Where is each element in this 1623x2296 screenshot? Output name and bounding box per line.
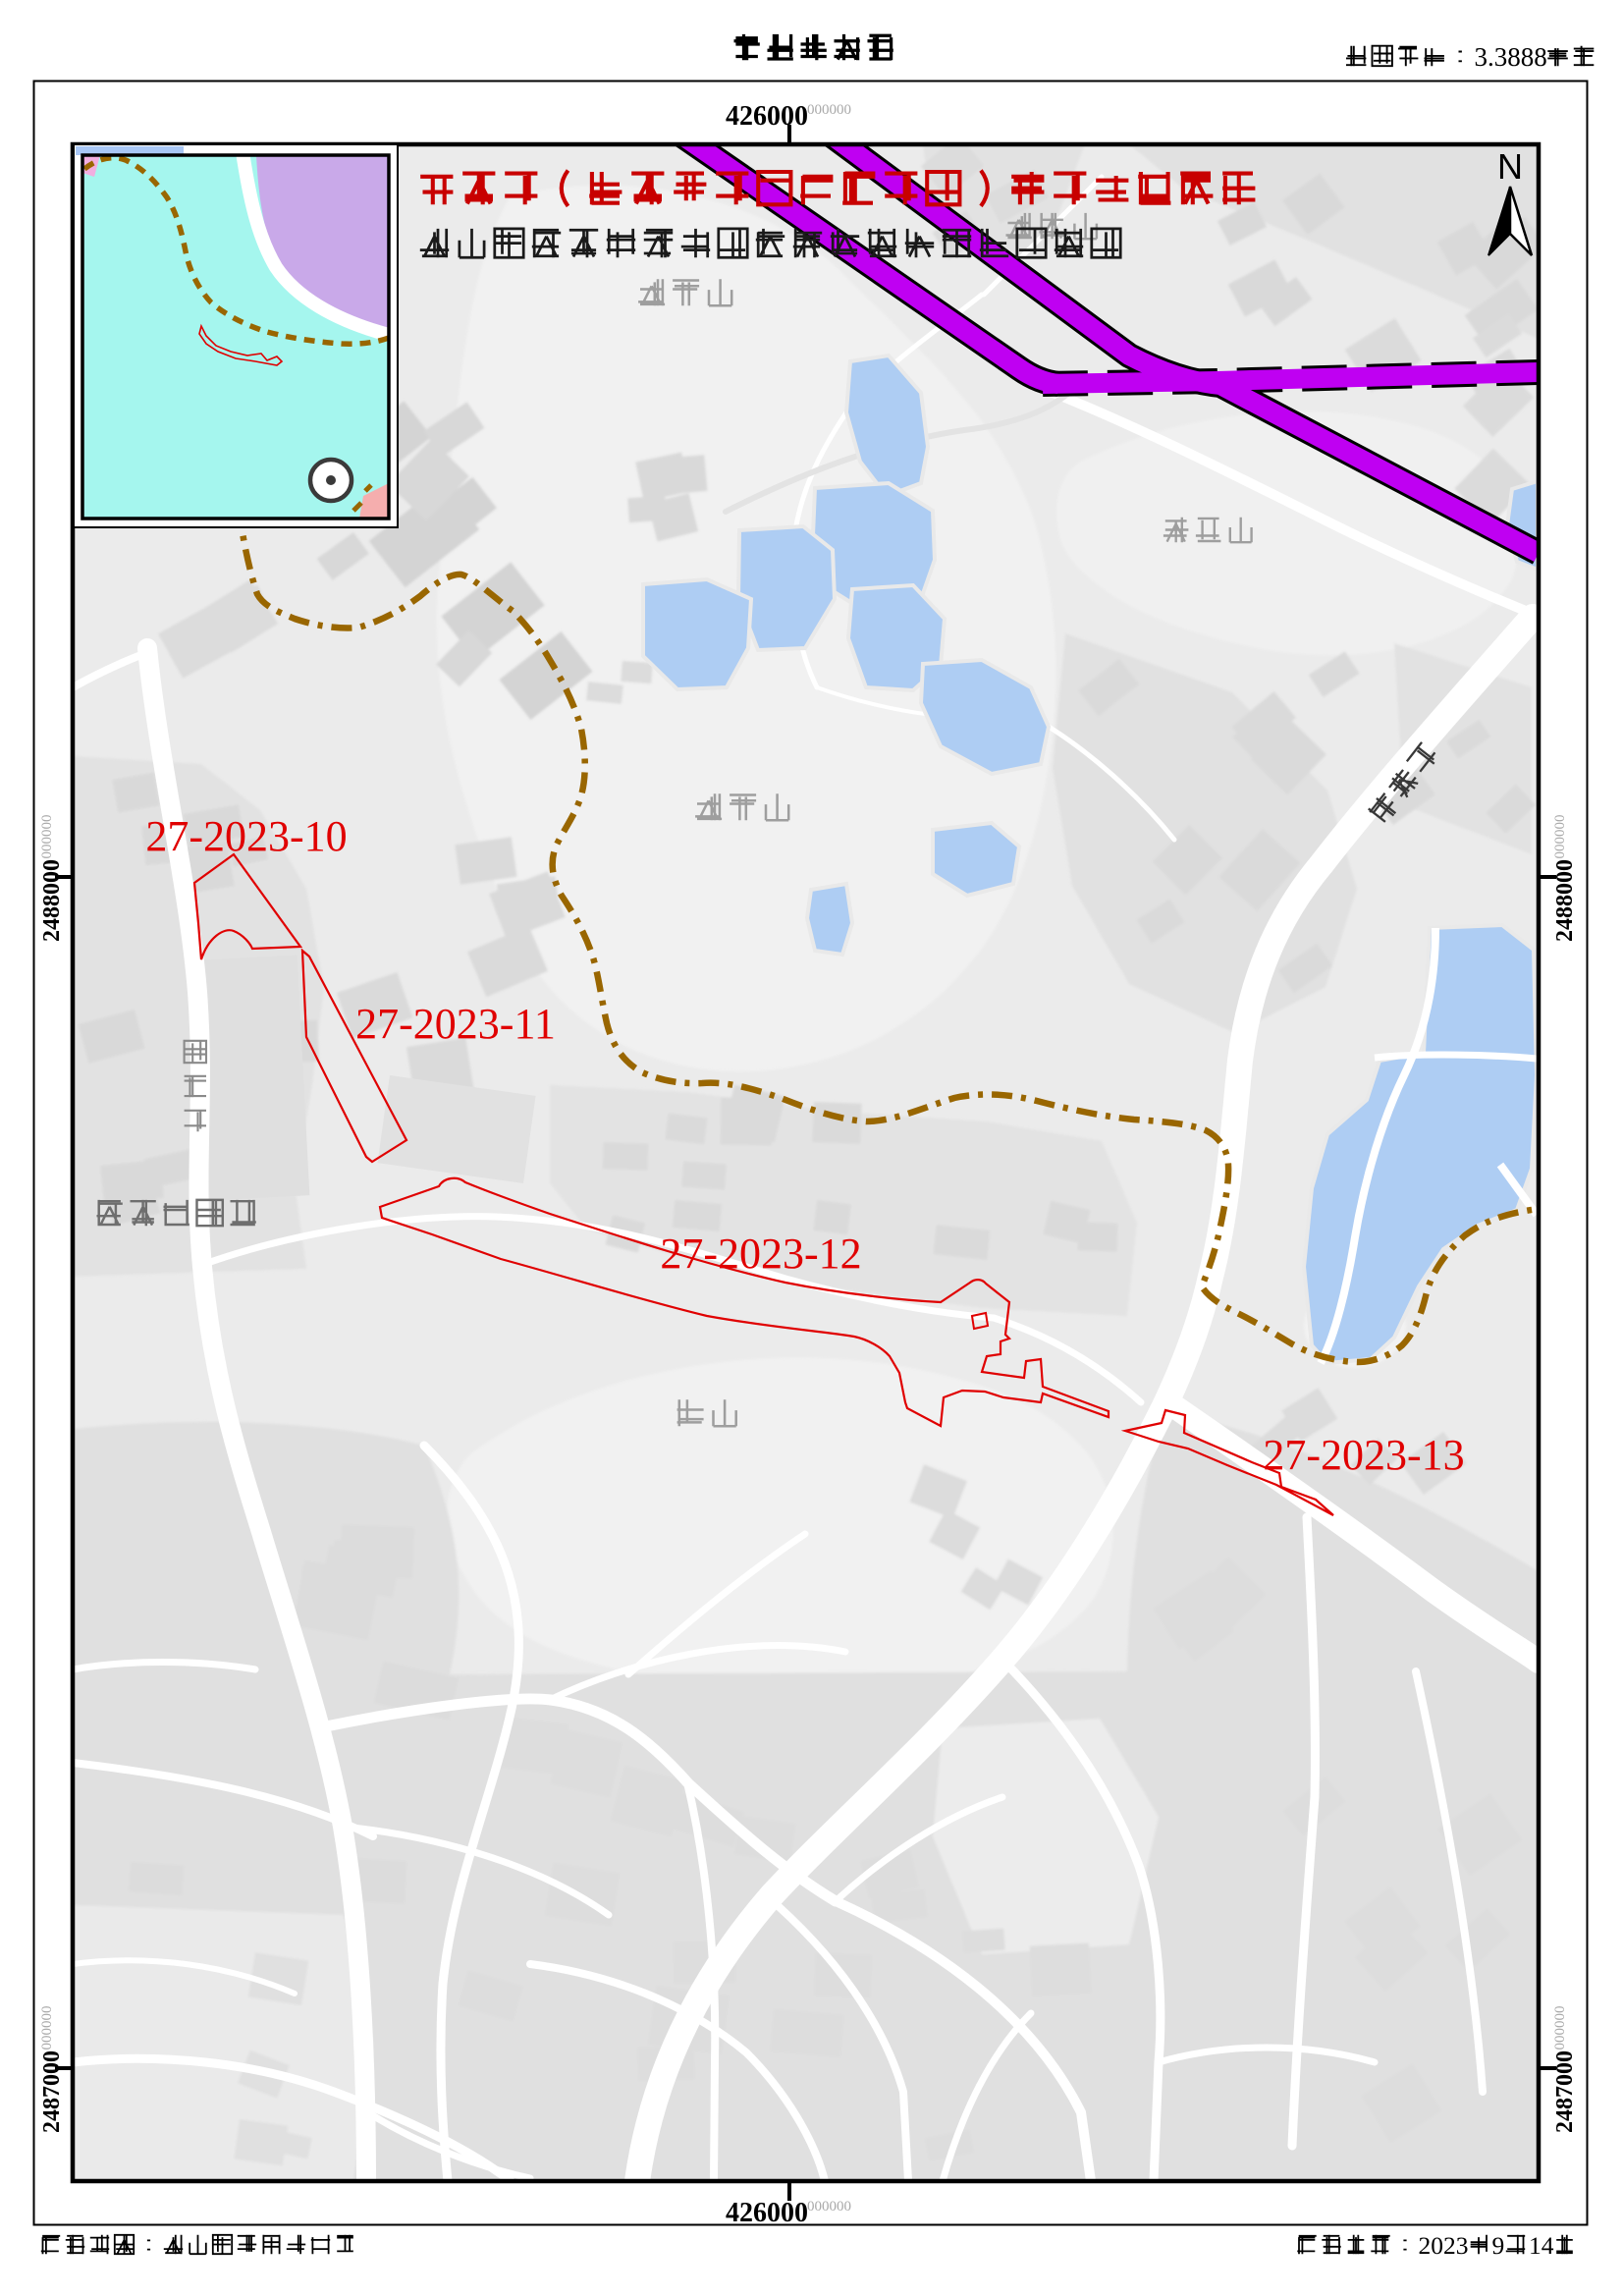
svg-text:2488000: 2488000 [39,859,65,942]
svg-text:2487000: 2487000 [1552,2050,1578,2133]
svg-text:000000: 000000 [39,815,55,859]
svg-text:2487000: 2487000 [39,2050,65,2133]
svg-text:27-2023-12: 27-2023-12 [660,1230,861,1278]
svg-text:000000: 000000 [39,2006,55,2050]
svg-text:14: 14 [1529,2231,1554,2260]
svg-text:000000: 000000 [1552,2006,1568,2050]
svg-text:2488000: 2488000 [1552,859,1578,942]
svg-text:000000: 000000 [807,102,851,118]
svg-text:27-2023-13: 27-2023-13 [1263,1431,1464,1479]
svg-text:2023: 2023 [1419,2231,1469,2260]
svg-text:426000: 426000 [726,101,808,132]
svg-text:9: 9 [1492,2231,1505,2260]
svg-text:3.3888: 3.3888 [1475,42,1547,72]
svg-text:000000: 000000 [1552,815,1568,859]
svg-text:27-2023-11: 27-2023-11 [355,1000,556,1048]
svg-text:N: N [1497,146,1523,187]
svg-text:426000: 426000 [726,2198,808,2228]
svg-text:27-2023-10: 27-2023-10 [145,812,347,860]
svg-text:000000: 000000 [807,2199,851,2214]
